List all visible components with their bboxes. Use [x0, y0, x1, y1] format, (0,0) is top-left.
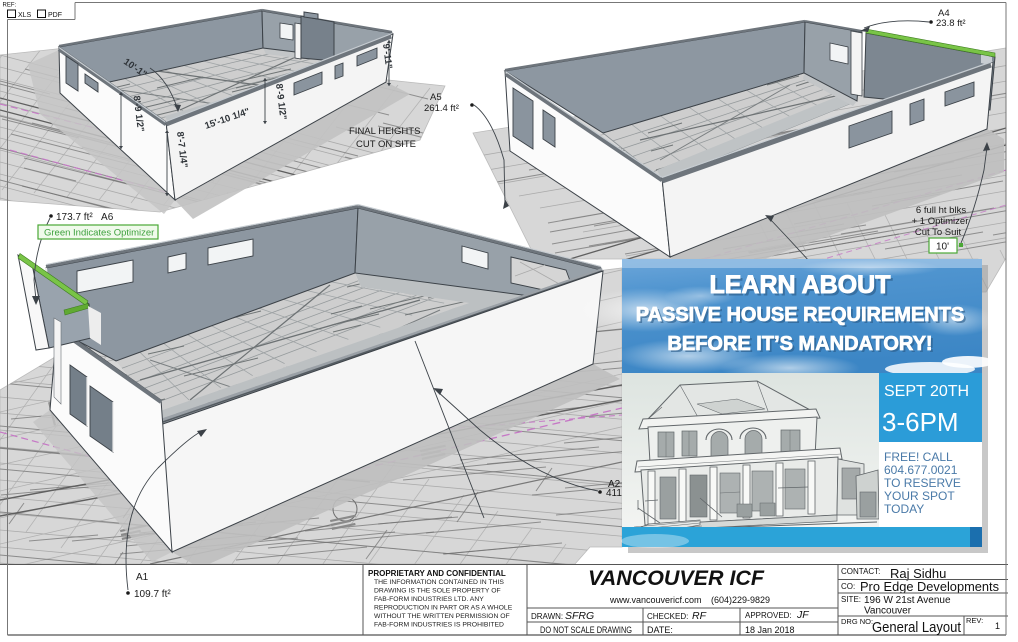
- svg-text:General Layout: General Layout: [872, 619, 962, 636]
- svg-text:WITHOUT THE WRITTEN PERMISSION: WITHOUT THE WRITTEN PERMISSION OF: [374, 613, 510, 620]
- svg-text:FAB-FORM INDUSTRIES LTD. ANY: FAB-FORM INDUSTRIES LTD. ANY: [374, 596, 484, 603]
- svg-text:109.7 ft²: 109.7 ft²: [134, 589, 171, 600]
- svg-text:DO NOT SCALE DRAWING: DO NOT SCALE DRAWING: [540, 625, 632, 635]
- svg-text:TO RESERVE: TO RESERVE: [884, 476, 961, 490]
- svg-text:SFRG: SFRG: [565, 610, 594, 622]
- svg-text:DRAWN:: DRAWN:: [531, 612, 563, 621]
- svg-text:A1: A1: [136, 572, 149, 583]
- svg-text:FINAL HEIGHTS: FINAL HEIGHTS: [349, 126, 420, 137]
- svg-text:(604)229-9829: (604)229-9829: [711, 595, 770, 605]
- svg-text:PROPRIETARY AND CONFIDENTIAL: PROPRIETARY AND CONFIDENTIAL: [368, 569, 506, 578]
- svg-text:3-6PM: 3-6PM: [882, 407, 959, 437]
- svg-text:www.vancouvericf.com: www.vancouvericf.com: [609, 595, 702, 605]
- svg-text:SITE:: SITE:: [841, 595, 861, 604]
- svg-text:Cut To Suit: Cut To Suit: [915, 227, 962, 238]
- svg-text:23.8 ft²: 23.8 ft²: [936, 18, 966, 29]
- svg-text:VANCOUVER ICF: VANCOUVER ICF: [588, 566, 765, 590]
- svg-text:173.7 ft² A6: 173.7 ft² A6: [56, 212, 114, 223]
- svg-text:REV:: REV:: [966, 616, 983, 625]
- svg-text:REPRODUCTION IN PART OR AS A W: REPRODUCTION IN PART OR AS A WHOLE: [374, 605, 513, 612]
- svg-text:TODAY: TODAY: [884, 502, 924, 516]
- svg-text:PDF: PDF: [48, 12, 62, 19]
- svg-text:XLS: XLS: [18, 12, 32, 19]
- svg-text:THE INFORMATION CONTAINED IN T: THE INFORMATION CONTAINED IN THIS: [374, 579, 504, 586]
- svg-text:Vancouver: Vancouver: [864, 606, 912, 617]
- svg-text:CUT ON SITE: CUT ON SITE: [356, 139, 416, 150]
- svg-text:PASSIVE HOUSE REQUIREMENTS: PASSIVE HOUSE REQUIREMENTS: [636, 304, 965, 326]
- svg-text:FREE! CALL: FREE! CALL: [884, 450, 953, 464]
- svg-text:A5: A5: [430, 92, 442, 103]
- svg-text:REF:: REF:: [3, 3, 17, 9]
- svg-text:+ 1 Optimizer: + 1 Optimizer: [912, 216, 969, 227]
- svg-text:DRAWING IS THE SOLE PROPERTY O: DRAWING IS THE SOLE PROPERTY OF: [374, 588, 501, 595]
- svg-text:196 W 21st Avenue: 196 W 21st Avenue: [864, 595, 951, 606]
- svg-text:Pro Edge Developments: Pro Edge Developments: [860, 579, 999, 594]
- svg-text:BEFORE IT’S MANDATORY!: BEFORE IT’S MANDATORY!: [667, 333, 932, 355]
- svg-text:SEPT 20TH: SEPT 20TH: [884, 383, 969, 400]
- svg-text:LEARN ABOUT: LEARN ABOUT: [709, 271, 890, 299]
- svg-text:Green Indicates Optimizer: Green Indicates Optimizer: [44, 228, 154, 239]
- svg-text:YOUR SPOT: YOUR SPOT: [884, 489, 955, 503]
- svg-text:RF: RF: [692, 610, 707, 622]
- svg-text:6 full ht blks: 6 full ht blks: [916, 205, 966, 216]
- svg-text:DATE:: DATE:: [647, 625, 673, 635]
- svg-text:261.4 ft²: 261.4 ft²: [424, 103, 459, 114]
- svg-text:JF: JF: [796, 609, 809, 621]
- svg-text:DRG NO:: DRG NO:: [841, 617, 873, 626]
- svg-text:411: 411: [606, 488, 622, 499]
- svg-text:604.677.0021: 604.677.0021: [884, 463, 958, 477]
- svg-text:1: 1: [995, 621, 1000, 631]
- svg-text:FAB-FORM INDUSTRIES IS PROHIBI: FAB-FORM INDUSTRIES IS PROHIBITED: [374, 622, 504, 629]
- svg-text:CONTACT:: CONTACT:: [841, 567, 880, 576]
- svg-text:CO:: CO:: [841, 582, 855, 591]
- svg-text:CHECKED:: CHECKED:: [647, 612, 688, 621]
- svg-text:18 Jan 2018: 18 Jan 2018: [745, 625, 795, 635]
- svg-text:10': 10': [936, 242, 949, 253]
- svg-text:APPROVED:: APPROVED:: [745, 611, 792, 620]
